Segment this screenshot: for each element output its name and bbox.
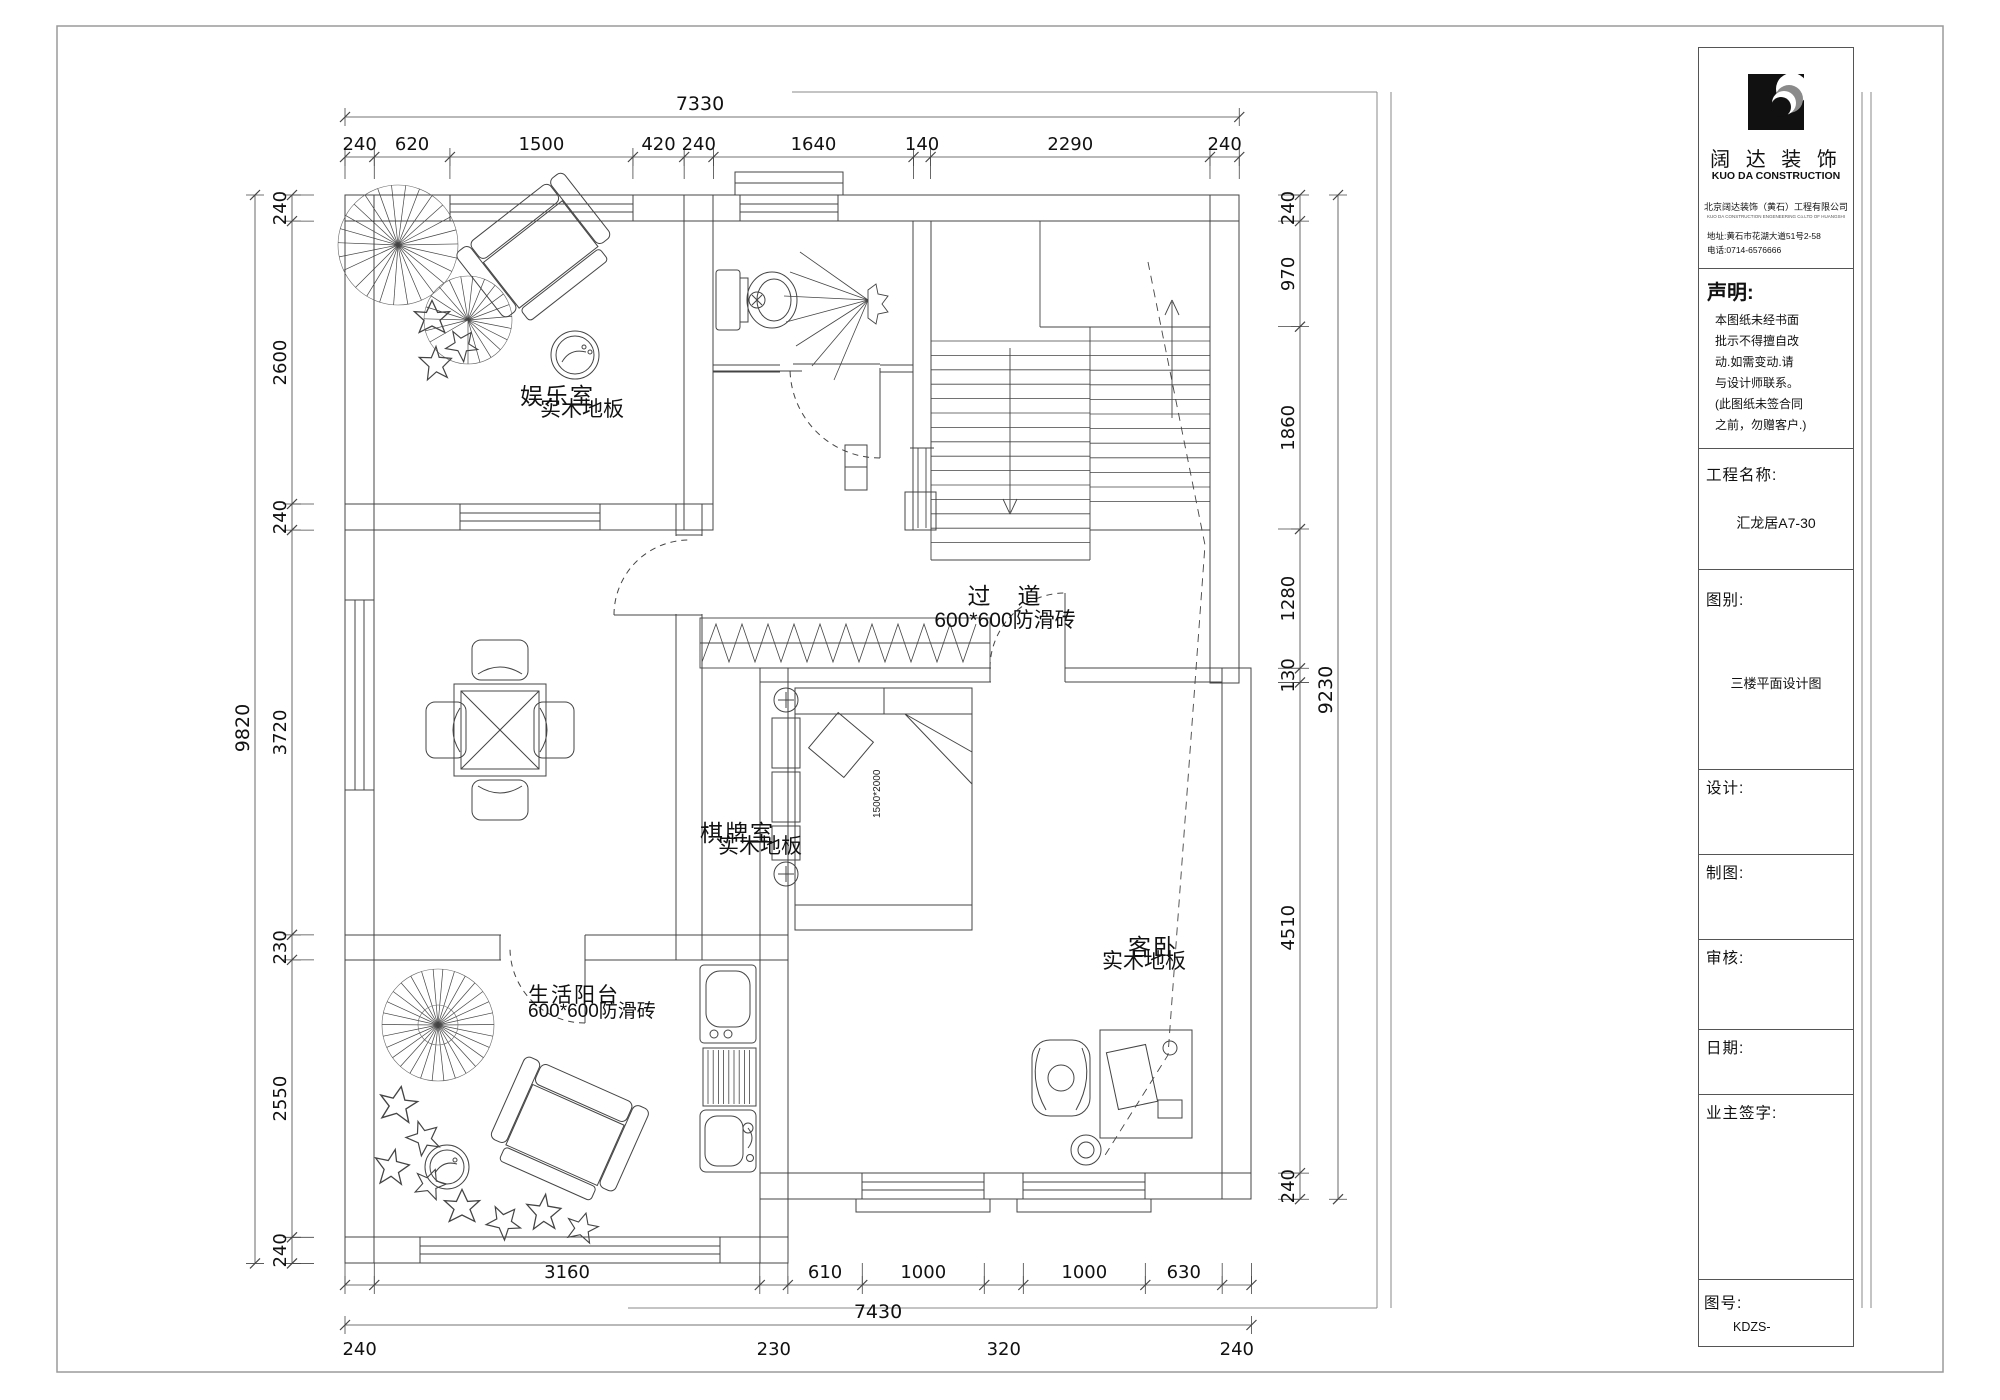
project-name-value: 汇龙居A7-30 bbox=[1699, 513, 1853, 533]
mahjong-table bbox=[454, 684, 546, 776]
company-name: 北京阔达装饰（黄石）工程有限公司 bbox=[1699, 200, 1853, 213]
chess-room-furniture bbox=[426, 640, 574, 820]
plant-icon bbox=[338, 185, 458, 305]
svg-text:140: 140 bbox=[905, 134, 939, 155]
svg-text:2600: 2600 bbox=[270, 340, 291, 386]
svg-text:970: 970 bbox=[1278, 257, 1299, 291]
svg-text:3720: 3720 bbox=[270, 710, 291, 756]
svg-text:420: 420 bbox=[641, 134, 675, 155]
desk-chair-person bbox=[1032, 1040, 1090, 1116]
svg-text:240: 240 bbox=[1207, 134, 1241, 155]
drawing-category-value: 三楼平面设计图 bbox=[1699, 673, 1853, 692]
room-label-bedroom: 客卧 实木地板 bbox=[1128, 936, 1186, 972]
brand-name-en: KUO DA CONSTRUCTION bbox=[1699, 170, 1853, 182]
statement-label: 声明: bbox=[1707, 276, 1754, 305]
water-heater bbox=[700, 965, 756, 1043]
bed-size-label: 1500*2000 bbox=[872, 770, 883, 818]
svg-text:240: 240 bbox=[1278, 191, 1299, 225]
svg-text:4510: 4510 bbox=[1278, 905, 1299, 951]
drawing-number-label: 图号: bbox=[1704, 1291, 1742, 1313]
room-floor-note: 实木地板 bbox=[1102, 951, 1186, 972]
svg-text:240: 240 bbox=[270, 191, 291, 225]
roof-slope-dashed-line bbox=[1102, 262, 1205, 1160]
drafter-label: 制图: bbox=[1706, 861, 1744, 883]
lounge-chair-balcony bbox=[483, 1055, 651, 1208]
svg-text:230: 230 bbox=[757, 1339, 791, 1360]
statement-line: (此图纸未签合同 bbox=[1715, 394, 1845, 415]
flower-icon bbox=[375, 1148, 413, 1188]
svg-text:240: 240 bbox=[342, 134, 376, 155]
svg-text:1500: 1500 bbox=[519, 134, 565, 155]
drawing-number-value: KDZS- bbox=[1733, 1320, 1771, 1334]
plant-icon bbox=[382, 969, 494, 1081]
bed bbox=[795, 688, 972, 930]
statement-line: 本图纸未经书面 bbox=[1715, 310, 1845, 331]
flower-icon bbox=[377, 1083, 420, 1123]
window-bath-top bbox=[735, 172, 843, 221]
svg-text:240: 240 bbox=[270, 500, 291, 534]
toilet-icon bbox=[716, 270, 797, 330]
room-label-entertainment: 娱乐室 实木地板 bbox=[520, 385, 624, 420]
window-bedroom-1 bbox=[856, 1173, 990, 1212]
date-label: 日期: bbox=[1706, 1036, 1744, 1058]
room-floor-note: 600*600防滑砖 bbox=[900, 610, 1110, 631]
svg-text:130: 130 bbox=[1278, 658, 1299, 692]
stair-down-arrow bbox=[1003, 348, 1017, 514]
svg-text:2290: 2290 bbox=[1047, 134, 1093, 155]
svg-text:1280: 1280 bbox=[1278, 576, 1299, 622]
room-floor-note: 600*600防滑砖 bbox=[528, 1002, 656, 1021]
svg-text:320: 320 bbox=[987, 1339, 1021, 1360]
statement-line: 与设计师联系。 bbox=[1715, 373, 1845, 394]
svg-text:240: 240 bbox=[1278, 1169, 1299, 1203]
side-table-balcony bbox=[425, 1145, 469, 1189]
svg-text:240: 240 bbox=[682, 134, 716, 155]
dimension-annotations: 2406201500420240164014022902402403160230… bbox=[232, 93, 1347, 1360]
flower-icon bbox=[526, 1191, 566, 1233]
flower-icon bbox=[483, 1199, 528, 1243]
owner-signature-label: 业主签字: bbox=[1706, 1101, 1777, 1123]
designer-label: 设计: bbox=[1706, 776, 1744, 798]
room-label-chess: 棋牌室 实木地板 bbox=[700, 822, 802, 857]
company-name-en: KUO DA CONSTRUCTION ENGENEERING Co.LTD O… bbox=[1699, 214, 1853, 219]
flower-icon bbox=[403, 1115, 447, 1160]
brand-name: 阔 达 装 饰 bbox=[1699, 143, 1853, 172]
door-bathroom-sliding bbox=[713, 363, 880, 458]
room-label-balcony: 生活阳台 600*600防滑砖 bbox=[528, 985, 656, 1021]
desk bbox=[1100, 1030, 1192, 1138]
door-chess-room bbox=[614, 535, 703, 615]
floor-plan-sheet: { "title_block": { "logo_text": "阔 达 装 饰… bbox=[0, 0, 2000, 1400]
svg-text:1000: 1000 bbox=[1061, 1262, 1107, 1283]
svg-text:9230: 9230 bbox=[1315, 666, 1337, 714]
svg-text:2550: 2550 bbox=[270, 1076, 291, 1122]
reviewer-label: 审核: bbox=[1706, 946, 1744, 968]
hall-cabinet bbox=[845, 445, 867, 490]
drain-board bbox=[703, 1048, 756, 1106]
floor-mat bbox=[1071, 1135, 1101, 1165]
project-name-label: 工程名称: bbox=[1706, 463, 1777, 485]
svg-text:9820: 9820 bbox=[232, 704, 254, 752]
svg-text:7430: 7430 bbox=[854, 1301, 902, 1323]
flower-icon bbox=[414, 300, 449, 332]
room-floor-note: 实木地板 bbox=[718, 836, 802, 857]
svg-text:620: 620 bbox=[395, 134, 429, 155]
stairs bbox=[910, 221, 1210, 1160]
room-floor-note: 实木地板 bbox=[540, 399, 624, 420]
svg-text:240: 240 bbox=[1220, 1339, 1254, 1360]
sheet-frame-lines bbox=[628, 92, 1871, 1308]
svg-text:1640: 1640 bbox=[791, 134, 837, 155]
drawing-category-label: 图别: bbox=[1706, 588, 1744, 610]
statement-line: 批示不得擅自改 bbox=[1715, 331, 1845, 352]
statement-line: 之前，勿赠客户.) bbox=[1715, 415, 1845, 436]
bathroom bbox=[716, 252, 888, 380]
svg-text:1000: 1000 bbox=[900, 1262, 946, 1283]
window-balcony-bottom bbox=[420, 1237, 720, 1263]
company-phone: 电话:0714-6576666 bbox=[1707, 244, 1781, 256]
window-bedroom-2 bbox=[1017, 1173, 1151, 1212]
company-logo-icon bbox=[1748, 74, 1804, 130]
statement-line: 动.如需变动.请 bbox=[1715, 352, 1845, 373]
window-ent-bottom bbox=[460, 504, 600, 530]
chair-top bbox=[472, 640, 528, 680]
svg-text:7330: 7330 bbox=[676, 93, 724, 115]
doors bbox=[500, 363, 1065, 1023]
svg-text:240: 240 bbox=[270, 1233, 291, 1267]
room-name: 过 道 bbox=[900, 585, 1110, 608]
company-address: 地址:黄石市花湖大道51号2-58 bbox=[1707, 230, 1821, 242]
svg-text:1860: 1860 bbox=[1278, 405, 1299, 451]
bedroom-furniture bbox=[772, 688, 1192, 1165]
svg-text:3160: 3160 bbox=[544, 1262, 590, 1283]
chair-left bbox=[426, 702, 466, 758]
flower-icon bbox=[444, 1189, 479, 1221]
generated-graphics bbox=[338, 185, 601, 1244]
ceiling-light-icon bbox=[784, 252, 888, 380]
svg-text:230: 230 bbox=[270, 930, 291, 964]
chair-right bbox=[534, 702, 574, 758]
chair-bottom bbox=[472, 780, 528, 820]
svg-text:630: 630 bbox=[1167, 1262, 1201, 1283]
title-block: 阔 达 装 饰 KUO DA CONSTRUCTION 北京阔达装饰（黄石）工程… bbox=[1698, 47, 1854, 1347]
svg-text:610: 610 bbox=[808, 1262, 842, 1283]
stair-rail-post bbox=[910, 448, 934, 528]
room-label-hallway: 过 道 600*600防滑砖 bbox=[900, 585, 1110, 631]
sink bbox=[700, 1110, 756, 1172]
window-chess-left bbox=[345, 600, 374, 790]
side-table bbox=[551, 331, 599, 379]
svg-text:240: 240 bbox=[342, 1339, 376, 1360]
page-border bbox=[57, 26, 1943, 1372]
